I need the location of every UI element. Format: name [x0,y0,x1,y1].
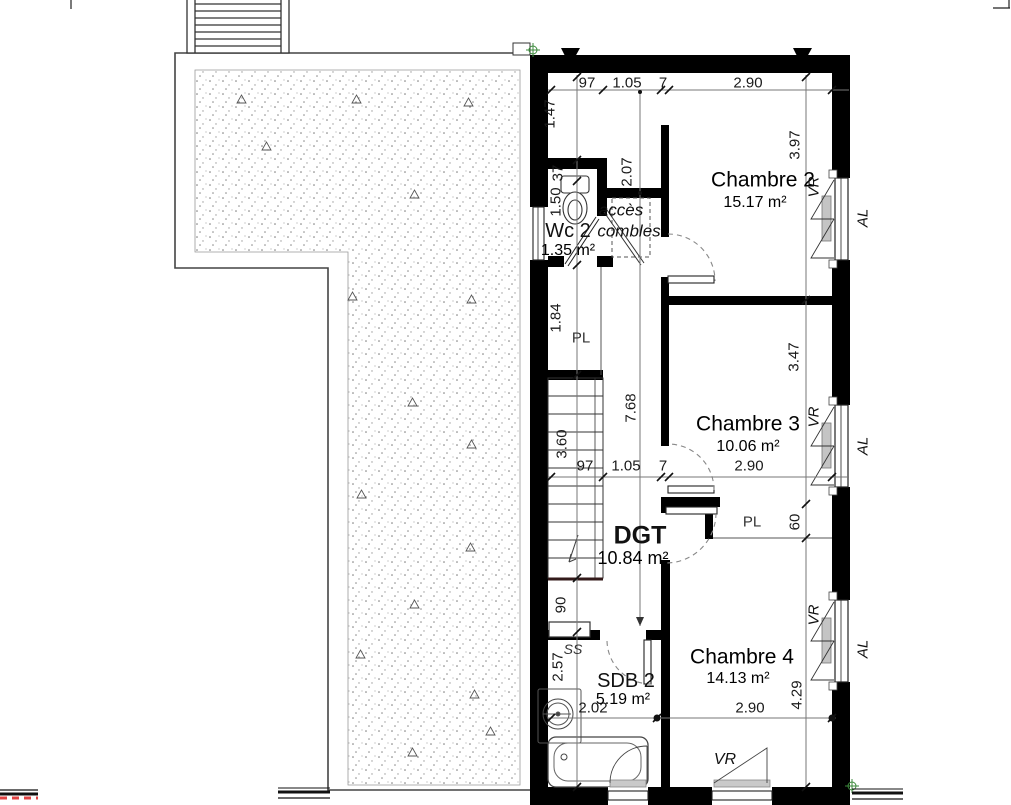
dim-label: 7 [659,459,667,474]
door-swing-chambre3 [668,444,714,490]
dim-label: 3.97 [788,130,803,159]
closet-label: PL [743,515,761,530]
room-area-dgt: 10.84 m² [597,549,668,567]
roller-shutter-box [822,423,831,468]
bathtub [548,737,648,787]
room-area-sdb2: 5.19 m² [596,692,650,708]
dim-label: 97 [579,76,596,91]
room-name-chambre3: Chambre 3 [696,414,800,435]
dim-label: 3.47 [787,342,802,371]
interior-stair [548,378,603,579]
roller-shutter-label: VR [714,752,736,768]
room-area-chambre2: 15.17 m² [723,195,786,211]
room-area-wc2: 1.35 m² [541,243,595,259]
room-area-chambre3: 10.06 m² [716,439,779,455]
acces-combles-label: combles [597,223,660,240]
dim-label: 60 [788,514,803,531]
floor-plan: 97 1.05 7 2.90 97 1.05 7 2.90 2.02 2.90 … [0,0,1011,805]
room-name-chambre2: Chambre 2 [711,170,815,191]
closet-label: PL [572,331,590,346]
dim-label: 3.60 [555,429,570,458]
dim-label: 7.68 [624,393,639,422]
room-name-wc2: Wc 2 [545,221,591,241]
roller-shutter-box [822,618,831,663]
door-leaf-chambre3 [668,486,714,493]
roller-shutter-box [822,196,831,241]
dim-label: 37 [551,165,566,182]
dim-label: 4.29 [790,680,805,709]
window-sdb2 [608,746,648,805]
dim-label: 1.50 [549,187,564,216]
aluminium-label: AL [856,640,871,658]
dim-label: 7 [659,76,667,91]
dim-label: 1.05 [611,459,640,474]
exterior-stair [187,0,289,53]
attic-area [175,43,530,790]
towel-rail-label: SS [564,642,583,656]
towel-rail-box [549,622,590,637]
dim-label: 1.47 [543,99,558,128]
door-swing-chambre2 [668,234,715,281]
dim-label: 2.90 [735,701,764,716]
room-area-chambre4: 14.13 m² [706,671,769,687]
door-leaf-chambre2 [668,276,714,283]
door-leaf-chambre4 [666,507,717,514]
acces-combles-label: accès [599,202,643,219]
dim-label: 2.07 [620,157,635,186]
floor-plan-drawing [0,0,1011,805]
dim-label: 90 [554,597,569,614]
dim-label: 1.05 [612,76,641,91]
room-name-sdb2: SDB 2 [597,671,655,691]
dim-label: 97 [577,459,594,474]
room-name-dgt: DGT [614,524,667,549]
aluminium-label: AL [856,209,871,227]
dim-label: 1.84 [549,303,564,332]
roller-shutter-label: VR [807,407,822,428]
aluminium-label: AL [856,437,871,455]
roller-shutter-label: VR [807,605,822,626]
attic-corner-box [513,43,530,55]
dim-label: 2.90 [734,459,763,474]
dim-label: 2.90 [733,76,762,91]
roller-shutter-label: VR [807,177,822,198]
room-name-chambre4: Chambre 4 [690,647,794,668]
